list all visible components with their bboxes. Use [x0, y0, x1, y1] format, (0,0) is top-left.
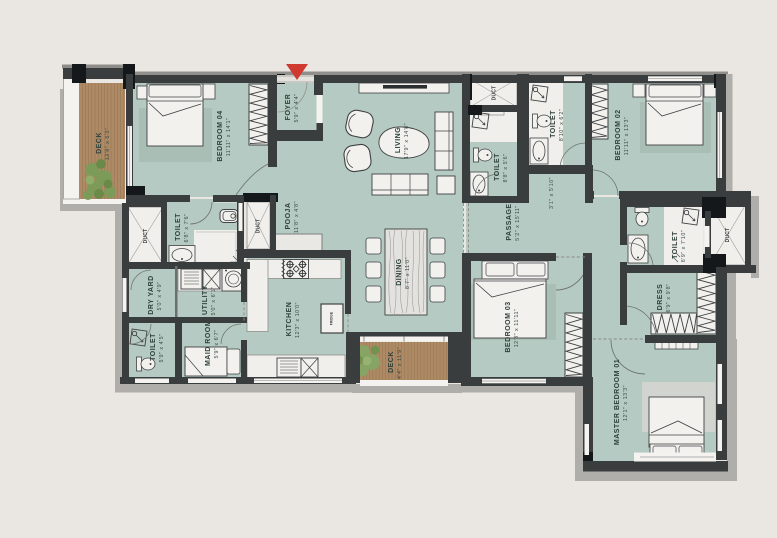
svg-text:POOJA: POOJA — [285, 202, 292, 229]
svg-text:FOYER: FOYER — [285, 94, 292, 121]
svg-text:12'8" x 5'3": 12'8" x 5'3" — [105, 128, 111, 161]
svg-text:12'3" x 10'0": 12'3" x 10'0" — [295, 302, 301, 338]
svg-text:UTILITY: UTILITY — [202, 285, 209, 315]
svg-text:KITCHEN: KITCHEN — [286, 302, 293, 337]
svg-text:DINING: DINING — [396, 258, 403, 286]
svg-text:DUCT: DUCT — [725, 228, 731, 243]
svg-text:12'1" x 13'3": 12'1" x 13'3" — [623, 385, 629, 421]
svg-text:8'10" x 6'2": 8'10" x 6'2" — [559, 109, 565, 142]
svg-text:TOILET: TOILET — [494, 153, 501, 181]
svg-text:DUCT: DUCT — [492, 86, 498, 101]
svg-text:6'8" x 7'6": 6'8" x 7'6" — [184, 213, 190, 242]
svg-text:TOILET: TOILET — [175, 213, 182, 241]
svg-text:DECK: DECK — [96, 132, 103, 154]
svg-text:BEDROOM 04: BEDROOM 04 — [217, 110, 224, 161]
svg-text:DECK: DECK — [388, 351, 395, 373]
svg-text:11'11" x 13'3": 11'11" x 13'3" — [624, 117, 630, 156]
svg-text:5'2" x 15'11": 5'2" x 15'11" — [515, 205, 521, 241]
svg-text:TOILET: TOILET — [550, 110, 557, 138]
svg-text:11'11" x 14'1": 11'11" x 14'1" — [226, 118, 232, 157]
svg-text:5'9" x 4'5": 5'9" x 4'5" — [159, 333, 165, 362]
svg-text:TOILET: TOILET — [150, 333, 157, 361]
svg-text:BEDROOM 02: BEDROOM 02 — [615, 109, 622, 160]
svg-text:4'4" x 11'9": 4'4" x 11'9" — [397, 347, 403, 379]
svg-text:3'1" x 5'10": 3'1" x 5'10" — [549, 177, 555, 209]
svg-text:6'9" x 7'10": 6'9" x 7'10" — [681, 230, 687, 263]
svg-text:11'8" x 4'8": 11'8" x 4'8" — [294, 201, 300, 233]
svg-text:DRY YARD: DRY YARD — [148, 275, 155, 314]
svg-text:8'7" x 11'0": 8'7" x 11'0" — [405, 257, 411, 289]
svg-text:DRESS: DRESS — [657, 284, 664, 311]
svg-text:5'9" x 4'4": 5'9" x 4'4" — [294, 93, 300, 122]
svg-text:12'3" x 11'11": 12'3" x 11'11" — [514, 309, 520, 348]
svg-text:FRIDGE: FRIDGE — [330, 311, 334, 325]
svg-text:DUCT: DUCT — [256, 219, 262, 234]
svg-text:PASSAGE: PASSAGE — [506, 203, 513, 240]
svg-text:DUCT: DUCT — [143, 229, 149, 244]
svg-text:LIVING: LIVING — [395, 127, 402, 153]
svg-text:5'9" x 6'7": 5'9" x 6'7" — [214, 329, 220, 358]
svg-text:5'0" x 4'9": 5'0" x 4'9" — [157, 281, 163, 310]
svg-text:TOILET: TOILET — [672, 231, 679, 259]
svg-text:17'9" x 14'8": 17'9" x 14'8" — [404, 123, 410, 159]
svg-text:5'0" x 6'1": 5'0" x 6'1" — [211, 286, 217, 315]
svg-text:BEDROOM 03: BEDROOM 03 — [505, 301, 512, 352]
svg-text:MAID ROOM: MAID ROOM — [205, 320, 212, 366]
svg-text:8'8" x 5'6": 8'8" x 5'6" — [503, 153, 509, 182]
svg-text:MASTER BEDROOM 01: MASTER BEDROOM 01 — [614, 359, 621, 445]
svg-text:6'9" x 9'8": 6'9" x 9'8" — [666, 283, 672, 312]
